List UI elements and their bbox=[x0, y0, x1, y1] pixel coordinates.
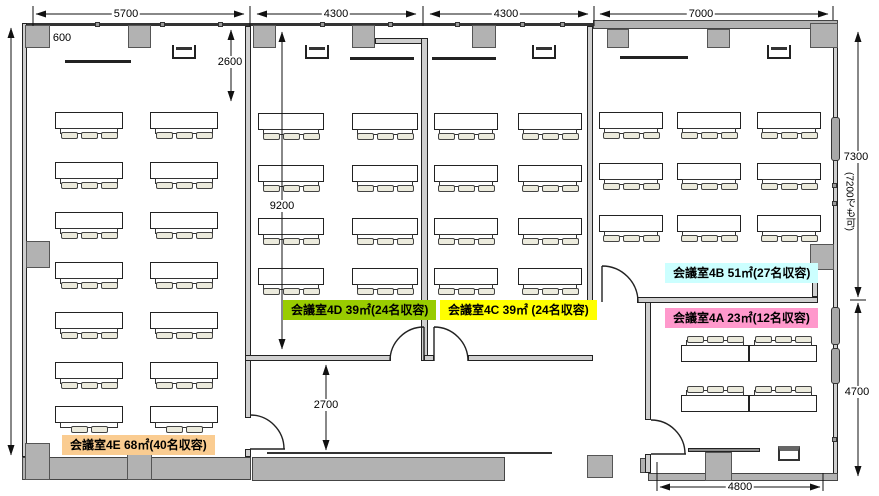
chair-icon bbox=[263, 133, 280, 140]
desk-4e bbox=[55, 362, 123, 379]
desk-4d bbox=[258, 113, 324, 130]
chair-icon bbox=[562, 133, 579, 140]
chair-icon bbox=[701, 132, 718, 139]
desk-4e bbox=[55, 262, 123, 279]
room-label-4a: 会議室4A 23㎡(12名収容) bbox=[665, 308, 818, 328]
chair-icon bbox=[721, 183, 738, 190]
chair-icon bbox=[91, 426, 108, 433]
chair-icon bbox=[61, 182, 78, 189]
chair-icon bbox=[438, 288, 455, 295]
chair-icon bbox=[701, 183, 718, 190]
chair-icon bbox=[156, 282, 173, 289]
desk-4e bbox=[150, 212, 218, 229]
chair-icon bbox=[623, 132, 640, 139]
monitor-screen bbox=[771, 47, 787, 50]
desk-4b bbox=[757, 112, 821, 129]
chair-icon bbox=[303, 288, 320, 295]
chair-icon bbox=[397, 133, 414, 140]
monitor-screen bbox=[536, 47, 552, 50]
desk-4b bbox=[677, 112, 741, 129]
chair-icon bbox=[458, 133, 475, 140]
chair-icon bbox=[801, 183, 818, 190]
chair-icon bbox=[755, 386, 772, 393]
desk-4b bbox=[677, 163, 741, 180]
chair-icon bbox=[721, 235, 738, 242]
chair-icon bbox=[727, 386, 744, 393]
chair-icon bbox=[196, 382, 213, 389]
chair-icon bbox=[283, 133, 300, 140]
chair-icon bbox=[643, 183, 660, 190]
chair-icon bbox=[478, 288, 495, 295]
desk-4e bbox=[55, 406, 123, 423]
chair-icon bbox=[522, 238, 539, 245]
chair-icon bbox=[522, 133, 539, 140]
desk-4a bbox=[749, 395, 817, 412]
chair-icon bbox=[156, 132, 173, 139]
desk-4c bbox=[518, 268, 582, 285]
dim-offset-600: 600 bbox=[53, 32, 71, 44]
chair-icon bbox=[761, 183, 778, 190]
chair-icon bbox=[196, 182, 213, 189]
desk-4d bbox=[258, 165, 324, 182]
desk-4b bbox=[599, 215, 663, 232]
desk-4e bbox=[150, 262, 218, 279]
dim-right-4700: 4700 bbox=[843, 386, 871, 398]
desk-4c bbox=[434, 268, 498, 285]
chair-icon bbox=[801, 235, 818, 242]
chair-icon bbox=[156, 382, 173, 389]
whiteboard-4b bbox=[620, 56, 688, 59]
chair-icon bbox=[81, 232, 98, 239]
chair-icon bbox=[377, 288, 394, 295]
chair-icon bbox=[61, 282, 78, 289]
chair-icon bbox=[781, 132, 798, 139]
chair-icon bbox=[283, 288, 300, 295]
chair-icon bbox=[681, 132, 698, 139]
chair-icon bbox=[61, 232, 78, 239]
chair-icon bbox=[283, 185, 300, 192]
chair-icon bbox=[81, 182, 98, 189]
chair-icon bbox=[687, 386, 704, 393]
desk-4a bbox=[681, 345, 749, 362]
desk-4d bbox=[352, 218, 418, 235]
chair-icon bbox=[357, 238, 374, 245]
desk-4a bbox=[749, 345, 817, 362]
room-label-4d: 会議室4D 39㎡(24名収容) bbox=[283, 300, 436, 320]
chair-icon bbox=[478, 133, 495, 140]
monitor-icon-4e bbox=[172, 45, 196, 59]
chair-icon bbox=[397, 238, 414, 245]
desk-4e bbox=[150, 162, 218, 179]
desk-4e bbox=[150, 112, 218, 129]
dim-right-note-7200: (7200でも可) bbox=[842, 172, 857, 231]
chair-icon bbox=[727, 336, 744, 343]
chair-icon bbox=[438, 185, 455, 192]
chair-icon bbox=[681, 183, 698, 190]
small-table-icon bbox=[778, 446, 800, 461]
chair-icon bbox=[81, 282, 98, 289]
chair-icon bbox=[61, 382, 78, 389]
dim-top-4300b: 4300 bbox=[492, 8, 520, 20]
desk-4a bbox=[681, 395, 749, 412]
chair-icon bbox=[303, 133, 320, 140]
chair-icon bbox=[156, 232, 173, 239]
chair-icon bbox=[542, 133, 559, 140]
chair-icon bbox=[156, 182, 173, 189]
dim-right-7300: 7300 bbox=[842, 151, 870, 163]
room-label-4c: 会議室4C 39㎡ (24名収容) bbox=[440, 300, 597, 320]
whiteboard-4e bbox=[65, 60, 131, 63]
chair-icon bbox=[701, 235, 718, 242]
chair-icon bbox=[478, 185, 495, 192]
chair-icon bbox=[755, 336, 772, 343]
chair-icon bbox=[176, 382, 193, 389]
whiteboard-4d bbox=[350, 57, 414, 60]
chair-icon bbox=[101, 132, 118, 139]
chair-icon bbox=[542, 288, 559, 295]
counter-table bbox=[688, 448, 760, 452]
chair-icon bbox=[196, 232, 213, 239]
dim-depth-9200: 9200 bbox=[268, 200, 296, 212]
chair-icon bbox=[263, 238, 280, 245]
monitor-icon-4b bbox=[767, 45, 791, 59]
chair-icon bbox=[707, 386, 724, 393]
dim-top-7000: 7000 bbox=[687, 8, 715, 20]
chair-icon bbox=[71, 426, 88, 433]
monitor-screen bbox=[309, 47, 325, 50]
desk-4b bbox=[599, 112, 663, 129]
chair-icon bbox=[795, 336, 812, 343]
chair-icon bbox=[186, 426, 203, 433]
desk-4e bbox=[150, 406, 218, 423]
chair-icon bbox=[562, 238, 579, 245]
chair-icon bbox=[397, 288, 414, 295]
chair-icon bbox=[377, 185, 394, 192]
desk-4e bbox=[150, 362, 218, 379]
chair-icon bbox=[196, 132, 213, 139]
room-label-4e: 会議室4E 68㎡(40名収容) bbox=[62, 435, 215, 455]
desk-4d bbox=[258, 218, 324, 235]
chair-icon bbox=[303, 238, 320, 245]
chair-icon bbox=[438, 133, 455, 140]
chair-icon bbox=[303, 185, 320, 192]
chair-icon bbox=[562, 288, 579, 295]
chair-icon bbox=[357, 288, 374, 295]
chair-icon bbox=[623, 235, 640, 242]
chair-icon bbox=[458, 185, 475, 192]
chair-icon bbox=[81, 132, 98, 139]
desk-edge bbox=[155, 422, 213, 428]
chair-icon bbox=[397, 185, 414, 192]
chair-icon bbox=[603, 132, 620, 139]
floor-plan: 会議室4E 68㎡(40名収容) 会議室4D 39㎡(24名収容) 会議室4C … bbox=[0, 0, 879, 496]
chair-icon bbox=[81, 382, 98, 389]
whiteboard-4c bbox=[432, 57, 496, 60]
chair-icon bbox=[101, 382, 118, 389]
chair-icon bbox=[263, 288, 280, 295]
chair-icon bbox=[377, 133, 394, 140]
chair-icon bbox=[761, 132, 778, 139]
chair-icon bbox=[357, 133, 374, 140]
chair-icon bbox=[542, 238, 559, 245]
chair-icon bbox=[377, 238, 394, 245]
dim-top-5700: 5700 bbox=[112, 8, 140, 20]
desk-4d bbox=[352, 268, 418, 285]
desk-4b bbox=[677, 215, 741, 232]
monitor-icon-4d bbox=[305, 45, 329, 59]
chair-icon bbox=[542, 185, 559, 192]
chair-icon bbox=[438, 238, 455, 245]
furniture-layer bbox=[0, 0, 879, 496]
chair-icon bbox=[176, 232, 193, 239]
chair-icon bbox=[176, 132, 193, 139]
chair-icon bbox=[61, 132, 78, 139]
dim-corridor-2700: 2700 bbox=[312, 399, 340, 411]
chair-icon bbox=[643, 235, 660, 242]
chair-icon bbox=[101, 182, 118, 189]
chair-icon bbox=[101, 282, 118, 289]
chair-icon bbox=[196, 332, 213, 339]
desk-4c bbox=[434, 218, 498, 235]
desk-4e bbox=[55, 212, 123, 229]
chair-icon bbox=[196, 282, 213, 289]
desk-4e bbox=[55, 312, 123, 329]
chair-icon bbox=[283, 238, 300, 245]
chair-icon bbox=[681, 235, 698, 242]
desk-4e bbox=[55, 162, 123, 179]
chair-icon bbox=[176, 282, 193, 289]
desk-4c bbox=[434, 165, 498, 182]
chair-icon bbox=[603, 235, 620, 242]
chair-icon bbox=[603, 183, 620, 190]
chair-icon bbox=[781, 183, 798, 190]
room-label-4b: 会議室4B 51㎡(27名収容) bbox=[665, 263, 818, 283]
chair-icon bbox=[458, 288, 475, 295]
desk-4b bbox=[757, 163, 821, 180]
chair-icon bbox=[357, 185, 374, 192]
chair-icon bbox=[562, 185, 579, 192]
chair-icon bbox=[781, 235, 798, 242]
desk-4d bbox=[352, 165, 418, 182]
desk-4b bbox=[757, 215, 821, 232]
dim-bottom-4800: 4800 bbox=[726, 481, 754, 493]
chair-icon bbox=[795, 386, 812, 393]
chair-icon bbox=[176, 182, 193, 189]
chair-icon bbox=[176, 332, 193, 339]
chair-icon bbox=[801, 132, 818, 139]
chair-icon bbox=[478, 238, 495, 245]
chair-icon bbox=[458, 238, 475, 245]
dim-top-4300a: 4300 bbox=[322, 8, 350, 20]
monitor-screen bbox=[176, 47, 192, 50]
chair-icon bbox=[707, 336, 724, 343]
desk-4c bbox=[434, 113, 498, 130]
chair-icon bbox=[101, 232, 118, 239]
monitor-icon-4c bbox=[532, 45, 556, 59]
chair-icon bbox=[775, 386, 792, 393]
chair-icon bbox=[522, 185, 539, 192]
chair-icon bbox=[101, 332, 118, 339]
chair-icon bbox=[643, 132, 660, 139]
chair-icon bbox=[721, 132, 738, 139]
dim-front-2600: 2600 bbox=[216, 56, 244, 68]
chair-icon bbox=[623, 183, 640, 190]
desk-4e bbox=[150, 312, 218, 329]
chair-icon bbox=[166, 426, 183, 433]
desk-4b bbox=[599, 163, 663, 180]
chair-icon bbox=[263, 185, 280, 192]
chair-icon bbox=[156, 332, 173, 339]
desk-4e bbox=[55, 112, 123, 129]
chair-icon bbox=[761, 235, 778, 242]
desk-4c bbox=[518, 218, 582, 235]
desk-4c bbox=[518, 165, 582, 182]
desk-4d bbox=[352, 113, 418, 130]
chair-icon bbox=[81, 332, 98, 339]
chair-icon bbox=[775, 336, 792, 343]
chair-icon bbox=[522, 288, 539, 295]
desk-4d bbox=[258, 268, 324, 285]
desk-edge bbox=[60, 422, 118, 428]
chair-icon bbox=[687, 336, 704, 343]
chair-icon bbox=[61, 332, 78, 339]
desk-4c bbox=[518, 113, 582, 130]
